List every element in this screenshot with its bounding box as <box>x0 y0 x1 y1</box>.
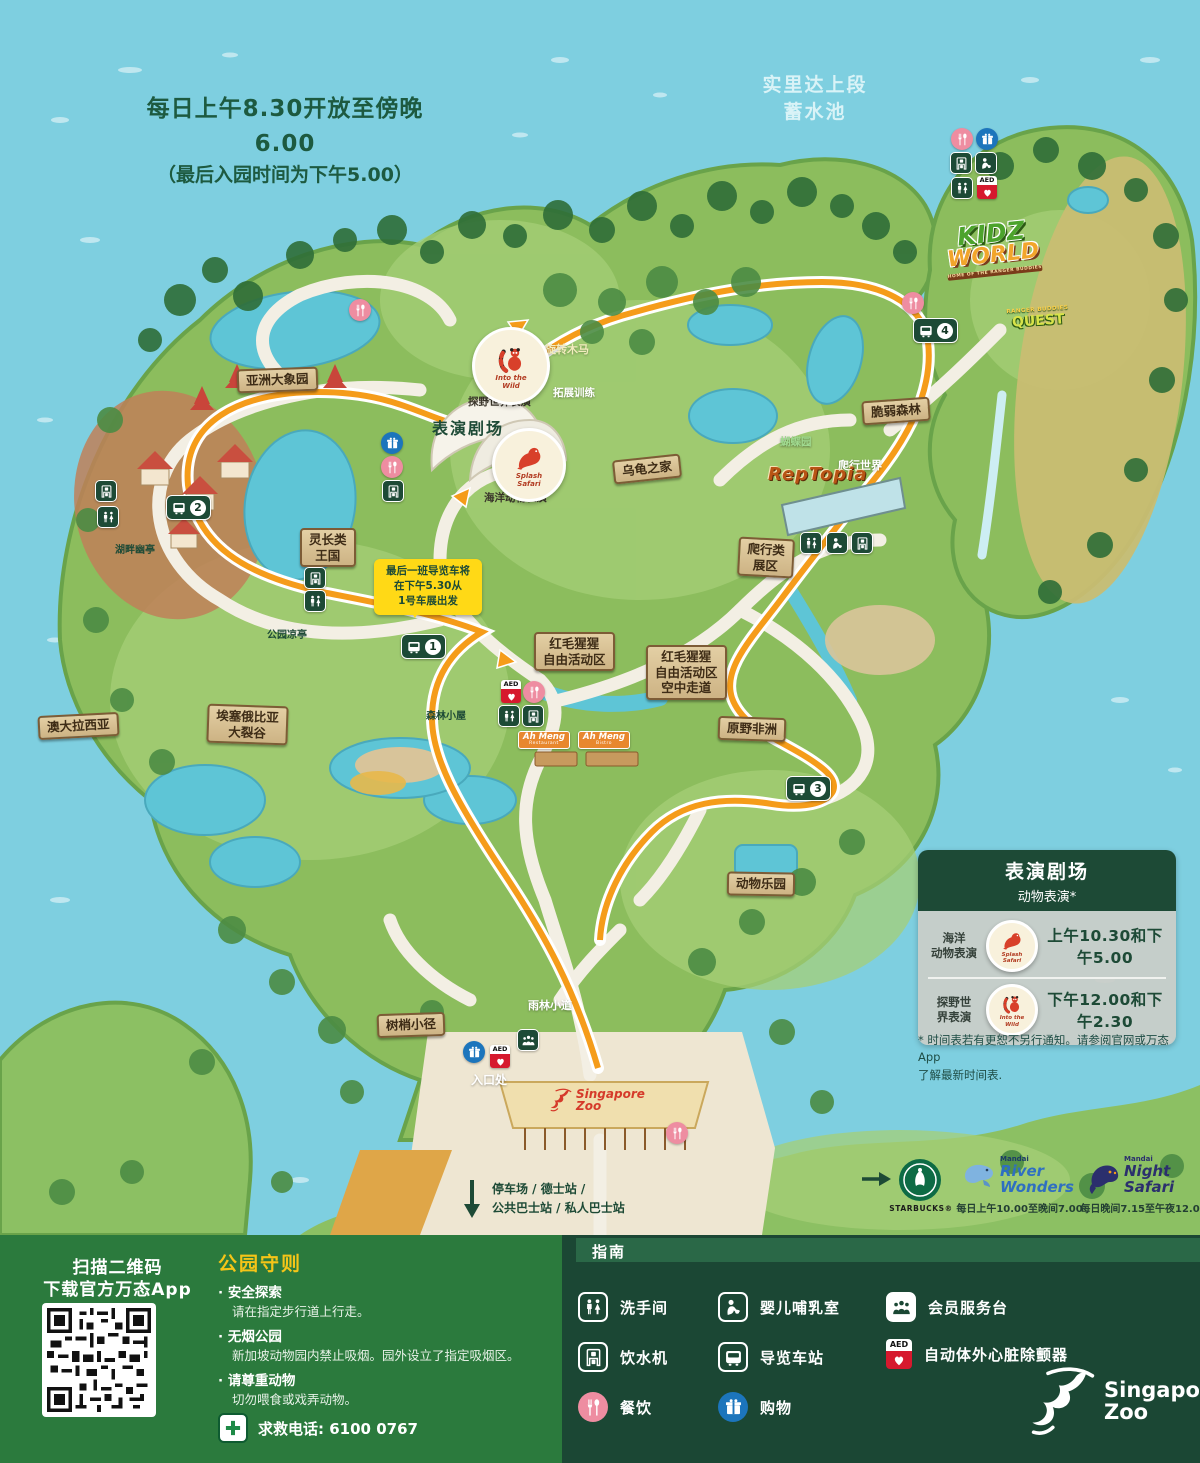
label-entrance: 入口处 <box>471 1071 507 1088</box>
label-carousel: 旋转木马 <box>545 341 589 357</box>
rule-1-desc: 请在指定步行道上行走。 <box>232 1301 552 1320</box>
sign-wild-africa: 原野非洲 <box>718 716 787 742</box>
label-rainforest-walk: 雨林小道 <box>528 997 572 1013</box>
footer-left-panel: 扫描二维码 下载官方万态App <box>0 1235 562 1463</box>
park-rules-title: 公园守则 <box>218 1249 302 1276</box>
legend-item-membership: 会员服务台 <box>886 1292 1008 1322</box>
rule-1-title: · 安全探索 <box>218 1281 282 1301</box>
membership-desk-icon <box>886 1292 916 1322</box>
label-amphitheatre: 表演剧场 <box>432 415 504 439</box>
rule-2-desc: 新加坡动物园内禁止吸烟。园外设立了指定吸烟区。 <box>232 1345 557 1364</box>
dining-icon <box>523 681 545 703</box>
dining-icon <box>578 1392 608 1422</box>
sign-asian-elephants: 亚洲大象园 <box>237 367 318 393</box>
ranger-buddies-quest-logo: RANGER BUDDIES QUEST <box>1002 306 1073 330</box>
legend-item-shopping: 购物 <box>718 1392 792 1422</box>
rule-2-title: · 无烟公园 <box>218 1325 282 1345</box>
transport-note: 停车场 / 德士站 / 公共巴士站 / 私人巴士站 <box>492 1180 625 1218</box>
drinking-fountain-icon <box>950 152 972 174</box>
show-row-splash: 海洋动物表演 SplashSafari 上午10.30和下午5.00 <box>918 915 1176 977</box>
aed-icon: AED <box>886 1339 912 1369</box>
entrance-zoo-logo: SingaporeZoo <box>548 1088 645 1112</box>
tram-icon <box>918 323 934 339</box>
label-ropes-course: 拓展训练 <box>553 385 595 400</box>
restroom-icon <box>304 590 326 612</box>
legend-item-tram: 导览车站 <box>718 1342 824 1372</box>
dining-icon <box>381 456 403 478</box>
reptopia-logo: RepTopia <box>768 464 868 485</box>
drinking-fountain-icon <box>851 532 873 554</box>
tram-station-1: 1 <box>401 634 446 659</box>
show-times-panel: 表演剧场 动物表演* 海洋动物表演 SplashSafari 上午10.30和下… <box>918 850 1176 1045</box>
sign-rift-valley: 埃塞俄比亚大裂谷 <box>206 704 288 746</box>
last-tram-callout: 最后一班导览车将 在下午5.30从 1号车展出发 <box>374 559 482 615</box>
legend-item-drink: 饮水机 <box>578 1342 668 1372</box>
into-wild-show-time: 下午12.00和下午2.30 <box>1042 988 1168 1032</box>
footer: 扫描二维码 下载官方万态App <box>0 1235 1200 1463</box>
show-panel-header: 表演剧场 动物表演* <box>918 850 1176 911</box>
seal-icon <box>513 441 545 473</box>
zoo-map-poster: 每日上午8.30开放至傍晚6.00 （最后入园时间为下午5.00） 实里达上段 … <box>0 0 1200 1463</box>
qr-pattern <box>47 1308 151 1412</box>
orangutan-icon <box>1024 1365 1096 1437</box>
drinking-fountain-icon <box>382 480 404 502</box>
starbucks-icon <box>898 1158 942 1202</box>
splash-show-time: 上午10.30和下午5.00 <box>1042 924 1168 968</box>
membership-desk-icon <box>517 1029 539 1051</box>
shopping-icon <box>976 128 998 150</box>
tram-icon <box>171 500 187 516</box>
rule-3-desc: 切勿喂食或戏弄动物。 <box>232 1389 552 1408</box>
sign-orangutan-freeranging: 红毛猩猩自由活动区 <box>534 632 615 671</box>
restroom-icon <box>800 532 822 554</box>
reservoir-line2: 蓄水池 <box>740 99 890 126</box>
legend-header: 指南 <box>576 1238 1200 1262</box>
splash-safari-badge: SplashSafari <box>986 920 1038 972</box>
dining-icon <box>349 299 371 321</box>
dining-icon <box>666 1122 688 1144</box>
into-the-wild-badge: Into theWild <box>472 327 550 405</box>
seal-icon <box>1000 928 1024 952</box>
shopping-icon <box>463 1041 485 1063</box>
drinking-fountain-icon <box>578 1342 608 1372</box>
tram-icon <box>718 1342 748 1372</box>
legend-item-restroom: 洗手间 <box>578 1292 668 1322</box>
tram-station-4: 4 <box>913 318 958 343</box>
river-wonders-icon <box>960 1158 998 1194</box>
nursing-room-icon <box>826 532 848 554</box>
reservoir-line1: 实里达上段 <box>740 72 890 99</box>
legend-title: 指南 <box>576 1238 1200 1262</box>
drinking-fountain-icon <box>95 480 117 502</box>
legend-item-dining: 餐饮 <box>578 1392 652 1422</box>
restroom-icon <box>97 506 119 528</box>
river-wonders-hours: 每日上午10.00至晚间7.00 <box>952 1200 1087 1215</box>
show-panel-body: 海洋动物表演 SplashSafari 上午10.30和下午5.00 探野世界表… <box>918 911 1176 1045</box>
opening-hours: 每日上午8.30开放至傍晚6.00 （最后入园时间为下午5.00） <box>120 92 450 190</box>
arrow-down-icon <box>462 1178 482 1220</box>
sign-primate-kingdom: 灵长类王国 <box>300 528 356 567</box>
tram-icon <box>406 639 422 655</box>
sign-orangutan-boardwalk: 红毛猩猩自由活动区空中走道 <box>646 645 727 700</box>
kidzworld-logo: KIDZ WORLD HOME OF THE RANGER BUDDIES <box>942 217 1042 281</box>
label-butterfly-garden: 蝴蝶园 <box>780 434 812 449</box>
bottom-left-island <box>0 1003 251 1235</box>
lemur-icon <box>1000 991 1024 1015</box>
aed-icon: AED <box>501 680 521 703</box>
sign-fragile-forest: 脆弱森林 <box>861 397 930 425</box>
tram-station-3: 3 <box>786 776 831 801</box>
qr-caption-line2: 下载官方万态App <box>25 1275 210 1300</box>
drinking-fountain-icon <box>522 705 544 727</box>
shopping-icon <box>718 1392 748 1422</box>
drinking-fountain-icon <box>304 567 326 589</box>
into-the-wild-badge: Into theWild <box>986 984 1038 1036</box>
dining-icon <box>902 292 924 314</box>
ahmeng-restaurant-logo: Ah Meng Restaurant <box>518 731 570 749</box>
splash-safari-badge: SplashSafari <box>492 428 566 502</box>
show-panel-subtitle: 动物表演* <box>918 886 1176 905</box>
nursing-room-icon <box>718 1292 748 1322</box>
sign-treetops-trail: 树梢小径 <box>377 1012 446 1038</box>
night-safari-hours: 每日晚间7.15至午夜12.00 <box>1076 1200 1200 1215</box>
legend-item-nursing: 婴儿哺乳室 <box>718 1292 840 1322</box>
label-park-pavilion: 公园凉亭 <box>267 626 307 641</box>
ahmeng-bistro-logo: Ah Meng Bistro <box>578 731 630 749</box>
sign-reptile-garden: 爬行类展区 <box>737 537 794 579</box>
starbucks-label: STARBUCKS® <box>884 1204 958 1213</box>
restroom-icon <box>498 705 520 727</box>
lemur-icon <box>494 341 528 375</box>
nursing-room-icon <box>975 152 997 174</box>
show-panel-footnote: * 时间表若有更恕不另行通知。请参阅官网或万态App 了解最新时间表. <box>918 1032 1190 1084</box>
dining-icon <box>951 128 973 150</box>
reservoir-label: 实里达上段 蓄水池 <box>740 72 890 125</box>
restroom-icon <box>578 1292 608 1322</box>
opening-hours-line2: （最后入园时间为下午5.00） <box>120 161 450 190</box>
shopping-icon <box>381 432 403 454</box>
show-panel-title: 表演剧场 <box>918 857 1176 884</box>
label-lakeside-pavilion: 湖畔幽亭 <box>115 541 155 556</box>
aed-icon: AED <box>490 1045 510 1068</box>
sign-australasia: 澳大拉西亚 <box>37 712 119 740</box>
tram-icon <box>791 781 807 797</box>
night-safari-icon <box>1086 1158 1122 1196</box>
label-forest-lodge: 森林小屋 <box>426 707 466 722</box>
qr-code <box>42 1303 156 1417</box>
rule-3-title: · 请尊重动物 <box>218 1369 295 1389</box>
footer-legend-panel: 指南 洗手间 婴儿哺乳室 会员服务台 饮水机 导览车站 <box>562 1235 1200 1463</box>
orangutan-icon <box>548 1088 572 1112</box>
aed-icon: AED <box>977 176 997 199</box>
restroom-icon <box>951 177 973 199</box>
singapore-zoo-logo: SingaporeZoo <box>1024 1365 1200 1437</box>
lion-rocks <box>825 605 935 675</box>
emergency-call: 求救电话: 6100 0767 <box>218 1413 418 1443</box>
tram-station-2: 2 <box>166 495 211 520</box>
opening-hours-line1: 每日上午8.30开放至傍晚6.00 <box>120 92 450 161</box>
arrow-right-icon <box>860 1170 892 1188</box>
sign-animal-land: 动物乐园 <box>727 871 795 896</box>
first-aid-icon <box>218 1413 248 1443</box>
